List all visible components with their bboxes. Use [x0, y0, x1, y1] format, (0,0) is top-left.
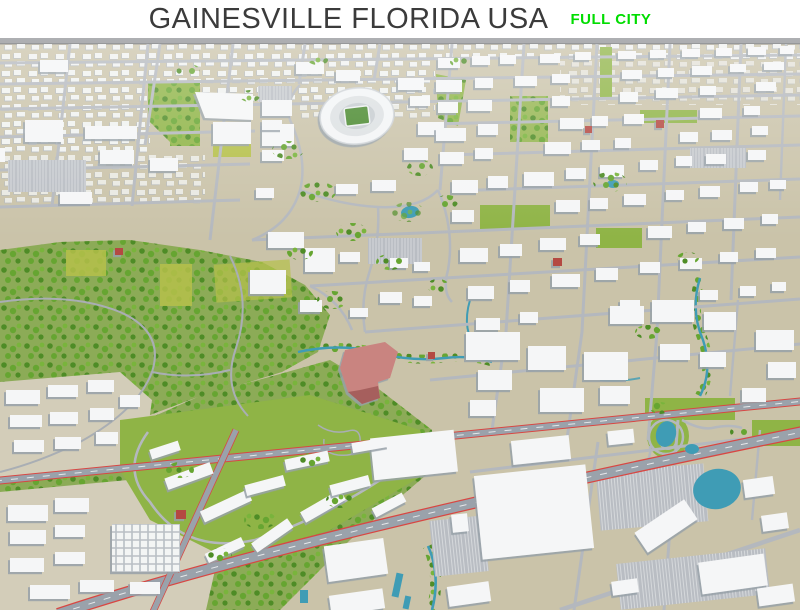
city-render — [0, 38, 800, 610]
title-bar: GAINESVILLE FLORIDA USA FULL CITY — [0, 0, 800, 38]
horizon-haze — [0, 38, 800, 610]
full-city-badge: FULL CITY — [571, 11, 652, 28]
page-title: GAINESVILLE FLORIDA USA — [149, 3, 549, 36]
screenshot-frame: GAINESVILLE FLORIDA USA FULL CITY — [0, 0, 800, 610]
